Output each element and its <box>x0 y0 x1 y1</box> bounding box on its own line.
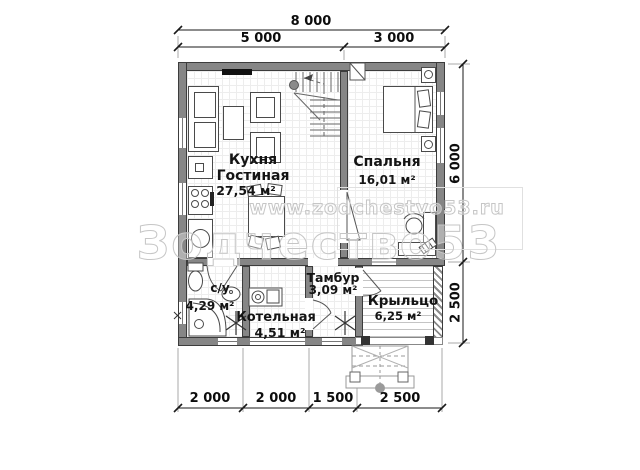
pillow-1 <box>417 89 431 108</box>
room-label-porch: Крыльцо <box>353 294 453 310</box>
dim-right-upper: 6 000 <box>449 134 464 194</box>
room-label-boiler: Котельная <box>226 311 326 326</box>
tv <box>222 69 252 75</box>
window-porch-wall <box>372 259 396 265</box>
room-area-porch: 6,25 м² <box>348 310 448 323</box>
room-area-kitchen-living: 27,54 м² <box>196 184 296 198</box>
room-label-kitchen-living: Кухня Гостиная <box>203 152 303 184</box>
dim-right-lower: 2 500 <box>449 273 464 333</box>
kitchen-sink <box>191 229 210 248</box>
window-right-2 <box>437 128 444 163</box>
porch-post-left <box>361 336 370 345</box>
coffee-table <box>223 106 244 140</box>
entrance-steps <box>346 346 414 388</box>
dining-table <box>248 196 285 237</box>
window-left-1 <box>179 118 186 148</box>
armchair-1-seat <box>256 97 275 118</box>
room-label-kitchen: Кухня <box>203 152 303 168</box>
dim-top-right: 3 000 <box>344 31 444 46</box>
sofa-cushion-2 <box>194 122 216 148</box>
room-area-bedroom: 16,01 м² <box>337 174 437 188</box>
room-label-bedroom: Спальня <box>337 154 437 170</box>
dim-top-total: 8 000 <box>261 14 361 29</box>
nightstand-1-lamp <box>424 70 433 79</box>
opening-living-vestibule <box>308 258 338 266</box>
pillow-2 <box>417 110 431 129</box>
dim-top-left: 5 000 <box>211 31 311 46</box>
opening-bathroom-door <box>207 258 237 266</box>
window-right-1 <box>437 92 444 115</box>
nightstand-2-lamp <box>424 140 433 149</box>
floor-plan-canvas: www.zodchestvo53.ru Зодчество53 Кухня Го… <box>0 0 640 470</box>
porch-post-right <box>425 336 434 345</box>
room-label-living: Гостиная <box>203 168 303 184</box>
burner-3 <box>191 200 199 208</box>
wall-top <box>178 62 445 71</box>
burner-4 <box>201 200 209 208</box>
dim-bottom-4: 2 500 <box>350 391 450 406</box>
room-area-boiler: 4,51 м² <box>230 326 330 340</box>
window-left-2 <box>179 183 186 215</box>
watermark-box <box>337 187 523 250</box>
sofa-cushion-1 <box>194 92 216 118</box>
room-label-bathroom: с/у <box>195 282 245 296</box>
